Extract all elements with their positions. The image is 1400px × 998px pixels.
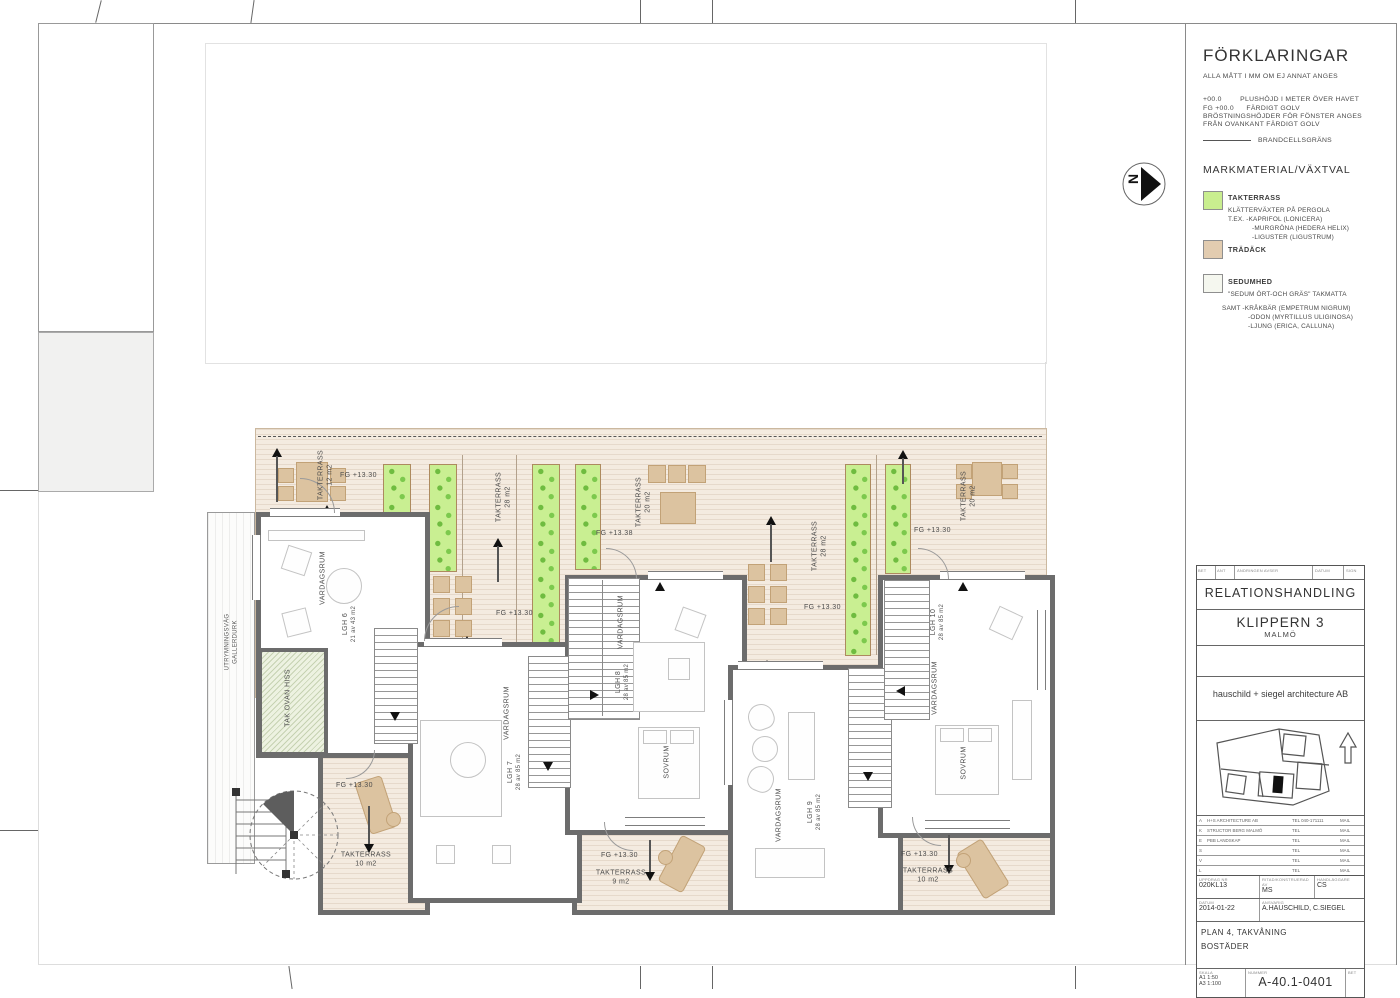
consultant-row-a: A H+S ARCHITECTURE AB TEL 040-171111 MAI… <box>1197 816 1364 826</box>
consultant-code: E <box>1197 838 1207 843</box>
spiral-stair-wedge <box>263 791 294 835</box>
roof-over-elevator-label: TAK OVAN HISS <box>285 669 294 727</box>
skala-a3: A3 1:100 <box>1199 981 1243 987</box>
fold-mark <box>95 0 102 23</box>
window <box>252 535 261 600</box>
fg-level-label: FG +13.30 <box>496 610 533 617</box>
fold-mark <box>712 966 713 989</box>
sedumhed-desc-4: -LJUNG (ERICA, CALLUNA) <box>1248 322 1334 331</box>
deck-table <box>660 492 696 524</box>
fold-mark <box>712 0 713 23</box>
sheet-corner-box <box>38 23 154 332</box>
plan-edge-line <box>1045 362 1046 428</box>
desk <box>755 848 825 878</box>
pillow <box>940 728 964 742</box>
fg-level-label: FG +13.30 <box>901 851 938 858</box>
stair-direction-arrow <box>390 712 400 721</box>
apartment-label-lgh10: LGH 1028 av 85 m2 <box>930 604 946 640</box>
consultant-tel: TEL <box>1292 868 1340 873</box>
title-block: BET ANT ÄNDRINGEN AVSER DATUM SIGN RELAT… <box>1196 565 1365 998</box>
legend-section-title: MARKMATERIAL/VÄXTVAL <box>1203 164 1395 176</box>
fold-mark <box>1075 966 1076 989</box>
escape-walkway-label: UTRYMNINGSVÄGGALLERDURK <box>225 614 240 671</box>
pergola-planter <box>383 464 411 517</box>
consultant-mail: MAIL <box>1340 848 1364 853</box>
takterrass-desc-1: KLÄTTERVÄXTER PÅ PERGOLA <box>1228 206 1330 215</box>
deck-table <box>668 465 686 483</box>
apartment-label-lgh8: LGH 828 av 85 m2 <box>615 664 631 700</box>
terrace-label-20b: TAKTERRASS20 m2 <box>960 471 978 521</box>
consultant-code: L <box>1197 868 1207 873</box>
stair-divider <box>602 580 603 716</box>
stair-direction-arrow <box>863 772 873 781</box>
coffee-table <box>668 658 690 680</box>
ritad-label: RITAD/KONSTRUERAD AV <box>1262 877 1312 887</box>
deck-chair <box>433 576 450 593</box>
stair-direction-arrow <box>590 690 599 700</box>
consultant-row-s: S TEL MAIL <box>1197 846 1364 856</box>
fg-level-label: FG +13.30 <box>336 782 373 789</box>
consultant-tel: TEL <box>1292 828 1340 833</box>
north-arrow: N <box>1120 160 1168 208</box>
room-label-sovrum-lgh10: SOVRUM <box>961 746 970 779</box>
consultant-table: A H+S ARCHITECTURE AB TEL 040-171111 MAI… <box>1197 816 1364 876</box>
sedumhed-legend-label: SEDUMHED <box>1228 277 1272 286</box>
room-label-vardagsrum-lgh9: VARDAGSRUM <box>776 788 785 842</box>
ritad-value: MS <box>1262 887 1312 894</box>
terrace-label-20a: TAKTERRASS20 m2 <box>635 477 653 527</box>
brandcell-label: BRANDCELLSGRÄNS <box>1258 136 1332 146</box>
project-row: KLIPPERN 3 MALMÖ <box>1197 610 1364 646</box>
pergola-planter <box>845 464 871 656</box>
round-table <box>450 742 486 778</box>
window <box>738 661 823 670</box>
fold-mark <box>250 0 254 23</box>
takterrass-desc-2: T.EX. -KAPRIFOL (LONICERA) <box>1228 215 1322 224</box>
escape-arrow-down <box>362 806 376 856</box>
brandcell-boundary-line <box>258 436 1042 437</box>
takterrass-legend-label: TAKTERRASS <box>1228 193 1281 202</box>
drawing-content-1: PLAN 4, TAKVÅNING <box>1201 928 1360 937</box>
north-letter: N <box>1125 174 1141 184</box>
apartment-label-lgh6: LGH 621 av 43 m2 <box>342 606 358 642</box>
window <box>625 817 705 826</box>
sedumhed-swatch <box>1203 274 1223 293</box>
legend-note-4b: FRÅN OVANKANT FÄRDIGT GOLV <box>1203 120 1395 130</box>
fold-mark <box>640 0 641 23</box>
deck-chair <box>770 608 787 625</box>
handlaggare-value: CS <box>1317 882 1362 889</box>
deck-chair <box>770 564 787 581</box>
consultant-tel: TEL <box>1292 838 1340 843</box>
takterrass-desc-3: -MURGRÖNA (HEDERA HELIX) <box>1252 224 1349 233</box>
sedumhed-desc-1: "SEDUM ÖRT-OCH GRÄS" TAKMATTA <box>1228 290 1347 299</box>
consultant-row-l: L TEL MAIL <box>1197 866 1364 875</box>
stool <box>492 845 511 864</box>
consultant-name: H+S ARCHITECTURE AB <box>1207 818 1292 823</box>
round-table <box>326 568 362 604</box>
rev-col-ant: ANT <box>1216 566 1235 579</box>
room-label-sovrum-lgh8: SOVRUM <box>664 745 673 778</box>
consultant-mail: MAIL <box>1340 818 1364 823</box>
stair-lgh6 <box>374 628 418 744</box>
stair-direction-arrow <box>543 762 553 771</box>
apartment-label-lgh7: LGH 728 av 85 m2 <box>507 754 523 790</box>
empty-plan-area <box>205 43 1047 364</box>
fold-mark <box>0 490 38 491</box>
bet-cell: BET <box>1346 969 1364 997</box>
terrace-label-28b: TAKTERRASS28 m2 <box>811 521 829 571</box>
tradack-legend-label: TRÄDÄCK <box>1228 245 1266 254</box>
pergola-planter <box>429 464 457 572</box>
sedumhed-desc-2: SAMT -KRÅKBÄR (EMPETRUM NIGRUM) <box>1222 304 1351 313</box>
spiral-stair <box>228 778 343 890</box>
consultant-code: A <box>1197 818 1207 823</box>
deck-chair <box>455 576 472 593</box>
terrace-label-28a: TAKTERRASS28 m2 <box>495 472 513 522</box>
consultant-name: STRUCTOR BERG MALMÖ <box>1207 828 1292 833</box>
content-row: PLAN 4, TAKVÅNING BOSTÄDER <box>1197 922 1364 969</box>
fg-level-label: FG +13.30 <box>340 472 377 479</box>
consultant-mail: MAIL <box>1340 858 1364 863</box>
escape-arrow-up <box>491 538 505 584</box>
sofa <box>1012 700 1032 780</box>
escape-arrow-up <box>764 516 778 564</box>
stair-direction-arrow <box>896 686 905 696</box>
job-info-row: UPPDRAG NR 020KL13 RITAD/KONSTRUERAD AV … <box>1197 876 1364 899</box>
consultant-code: K <box>1197 828 1207 833</box>
key-plan-north-arrow <box>1340 733 1356 763</box>
fold-mark <box>640 966 641 989</box>
fg-level-label: FG +13.30 <box>914 527 951 534</box>
uppdrag-value: 020KL13 <box>1199 882 1257 889</box>
consultant-mail: MAIL <box>1340 838 1364 843</box>
drawing-content-2: BOSTÄDER <box>1201 942 1360 951</box>
pergola-planter <box>575 464 601 570</box>
terrace-label-10b: TAKTERRASS10 m2 <box>903 867 953 886</box>
brandcell-line-sample <box>1203 140 1251 141</box>
consultant-name: PBB LANDSKAP <box>1207 838 1292 843</box>
terrace-label-10a: TAKTERRASS10 m2 <box>341 851 391 870</box>
deck-chair <box>748 586 765 603</box>
handlaggare-cell: HANDLÄGGARE CS <box>1315 876 1364 898</box>
consultant-tel: TEL <box>1292 858 1340 863</box>
ansvarig-value: A.HAUSCHILD, C.SIEGEL <box>1262 905 1362 912</box>
fold-mark <box>288 966 292 989</box>
key-plan <box>1197 721 1364 816</box>
tradack-swatch <box>1203 240 1223 259</box>
rev-col-sign: SIGN <box>1344 566 1364 579</box>
consultant-row-e: E PBB LANDSKAP TEL MAIL <box>1197 836 1364 846</box>
deck-chair <box>1002 484 1018 499</box>
takterrass-swatch <box>1203 191 1223 210</box>
fold-mark <box>1075 0 1076 23</box>
escape-arrow-up <box>896 450 910 484</box>
takterrass-desc-4: -LIGUSTER (LIGUSTRUM) <box>1252 233 1334 242</box>
date-row: DATUM 2014-01-22 ANSVARIG A.HAUSCHILD, C… <box>1197 899 1364 922</box>
consultant-tel: TEL <box>1292 848 1340 853</box>
fg-level-label: FG +13.30 <box>804 604 841 611</box>
datum-value: 2014-01-22 <box>1199 905 1257 912</box>
ritad-cell: RITAD/KONSTRUERAD AV MS <box>1260 876 1315 898</box>
legend-title: FÖRKLARINGAR <box>1203 46 1395 66</box>
rev-col-datum: DATUM <box>1313 566 1344 579</box>
stool <box>436 845 455 864</box>
entry-arrow <box>958 582 968 591</box>
nummer-cell: NUMMER A-40.1-0401 <box>1246 969 1346 997</box>
legend-divider <box>1185 23 1186 965</box>
project-name: KLIPPERN 3 <box>1197 610 1364 630</box>
datum-cell: DATUM 2014-01-22 <box>1197 899 1260 921</box>
fold-mark <box>0 830 38 831</box>
escape-arrow-up <box>270 448 284 506</box>
key-plan-highlight <box>1272 776 1283 794</box>
pillow <box>670 730 694 744</box>
room-label-vardagsrum-lgh6: VARDAGSRUM <box>320 551 329 605</box>
sedumhed-desc-3: -ODON (MYRTILLUS ULIGINOSA) <box>1248 313 1353 322</box>
window <box>724 700 733 785</box>
rev-col-bet: BET <box>1197 566 1216 579</box>
consultant-code: S <box>1197 848 1207 853</box>
empty-row <box>1197 646 1364 677</box>
deck-chair <box>770 586 787 603</box>
consultant-row-k: K STRUCTOR BERG MALMÖ TEL MAIL <box>1197 826 1364 836</box>
architect-firm: hauschild + siegel architecture AB <box>1197 677 1364 721</box>
sofa <box>788 712 815 780</box>
fg-level-label: FG +13.30 <box>601 852 638 859</box>
sheet-border-top <box>38 23 1396 24</box>
side-table-round <box>658 850 673 865</box>
apartment-label-lgh9: LGH 928 av 85 m2 <box>807 794 823 830</box>
sheet-grey-box <box>38 332 154 492</box>
side-table-round <box>956 853 971 868</box>
terrace-label-12: TAKTERRASS12 m2 <box>317 450 335 500</box>
pillow <box>643 730 667 744</box>
room-label-vardagsrum-lgh10: VARDAGSRUM <box>932 661 941 715</box>
stair-lgh10 <box>884 580 930 720</box>
bet-label: BET <box>1348 970 1362 975</box>
pergola-rail <box>876 455 877 655</box>
drawing-status: RELATIONSHANDLING <box>1197 580 1364 610</box>
window <box>648 571 723 580</box>
room-label-vardagsrum-lgh7: VARDAGSRUM <box>504 686 513 740</box>
deck-chair <box>688 465 706 483</box>
skala-cell: SKALA A1 1:50 A3 1:100 <box>1197 969 1246 997</box>
revision-header-row: BET ANT ÄNDRINGEN AVSER DATUM SIGN <box>1197 566 1364 580</box>
window <box>1037 610 1046 690</box>
project-city: MALMÖ <box>1197 630 1364 639</box>
drawing-number: A-40.1-0401 <box>1248 975 1343 989</box>
side-table-round <box>386 812 401 827</box>
terrace-label-9: TAKTERRASS9 m2 <box>596 869 646 888</box>
room-label-vardagsrum-lgh8: VARDAGSRUM <box>618 595 627 649</box>
deck-chair <box>1002 464 1018 479</box>
rev-col-andringen: ÄNDRINGEN AVSER <box>1235 566 1313 579</box>
consultant-tel: TEL 040-171111 <box>1292 818 1340 823</box>
legend-note-1: ALLA MÅTT I MM OM EJ ANNAT ANGES <box>1203 72 1395 82</box>
pergola-planter <box>532 464 560 654</box>
deck-chair <box>748 608 765 625</box>
fg-text: FÄRDIGT GOLV <box>1246 105 1300 112</box>
window <box>940 571 1025 580</box>
sheet-border-right <box>1396 23 1397 965</box>
uppdrag-cell: UPPDRAG NR 020KL13 <box>1197 876 1260 898</box>
number-row: SKALA A1 1:50 A3 1:100 NUMMER A-40.1-040… <box>1197 969 1364 997</box>
consultant-mail: MAIL <box>1340 828 1364 833</box>
bench <box>268 530 365 541</box>
consultant-mail: MAIL <box>1340 868 1364 873</box>
deck-chair <box>748 564 765 581</box>
armchair <box>752 736 778 762</box>
key-plan-map <box>1197 721 1362 815</box>
entry-arrow <box>655 582 665 591</box>
sheet-border-bottom <box>38 964 1396 965</box>
pillow <box>968 728 992 742</box>
fg-symbol: FG +00.0 <box>1203 105 1234 112</box>
fg-level-label: FG +13.38 <box>596 530 633 537</box>
consultant-row-v: V TEL MAIL <box>1197 856 1364 866</box>
consultant-code: V <box>1197 858 1207 863</box>
ansvarig-cell: ANSVARIG A.HAUSCHILD, C.SIEGEL <box>1260 899 1364 921</box>
